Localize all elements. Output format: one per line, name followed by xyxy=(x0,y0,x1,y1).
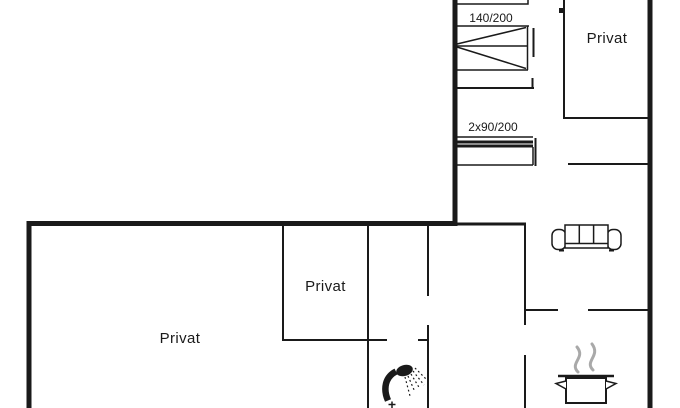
floor-plan-drawing xyxy=(0,0,680,408)
spray-line xyxy=(413,371,424,385)
floor-plan: 140/200 2x90/200 Privat Privat Privat xyxy=(0,0,680,408)
room-label-top-right: Privat xyxy=(564,31,650,46)
bed-icon xyxy=(457,26,534,70)
bed-duvet-line xyxy=(457,28,526,45)
walls-inner xyxy=(282,0,651,408)
walls-outer xyxy=(27,0,651,408)
spray-line xyxy=(415,368,427,380)
steam-icon xyxy=(575,344,594,372)
shower-icon xyxy=(385,363,427,408)
bed-size-label: 2x90/200 xyxy=(453,121,533,133)
drain-cross xyxy=(389,402,396,408)
pot-body xyxy=(566,378,606,403)
bed-duvet-line xyxy=(457,47,526,69)
spray-line xyxy=(405,377,410,396)
bed-icon xyxy=(457,137,536,166)
pot-handle xyxy=(556,381,566,389)
sofa-body xyxy=(565,225,608,248)
door-hinge-mark xyxy=(559,8,564,13)
sofa-icon xyxy=(552,225,621,251)
pot-handle xyxy=(606,381,616,389)
cooking-pot-icon xyxy=(556,344,616,403)
steam-curl xyxy=(590,344,594,370)
sofa-arm xyxy=(552,230,566,250)
shower-head xyxy=(395,363,414,378)
room-label-bottom-left: Privat xyxy=(130,331,230,346)
furniture-edge-top xyxy=(457,0,528,4)
spray-line xyxy=(411,374,420,389)
bed-size-label: 140/200 xyxy=(455,12,527,24)
shelf-line xyxy=(457,78,534,88)
steam-curl xyxy=(575,347,579,372)
shower-handle xyxy=(385,372,396,401)
sofa-arm xyxy=(607,230,621,250)
room-label-middle: Privat xyxy=(283,279,368,294)
